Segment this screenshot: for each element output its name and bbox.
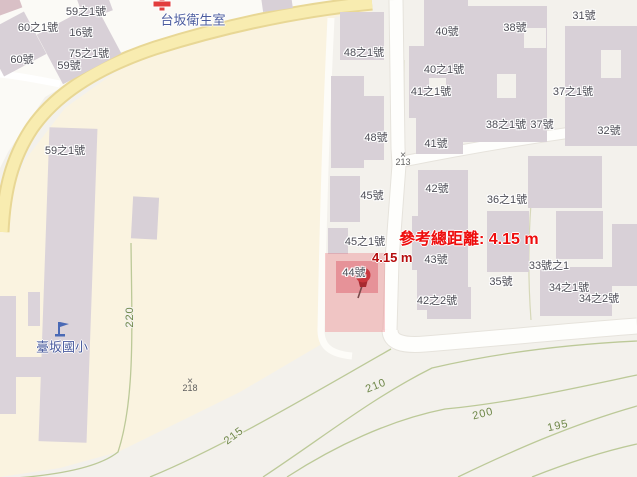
- map-base-graphics: [0, 0, 637, 477]
- map-canvas[interactable]: 台坂衛生室 臺坂國小 參考總距離: 4.15 m 4.15 m 59之1號60之…: [0, 0, 637, 477]
- measurement-total-distance-label: 參考總距離: 4.15 m: [399, 225, 539, 249]
- measurement-segment-label: 4.15 m: [372, 250, 412, 265]
- pushpin-marker-icon[interactable]: [350, 266, 376, 302]
